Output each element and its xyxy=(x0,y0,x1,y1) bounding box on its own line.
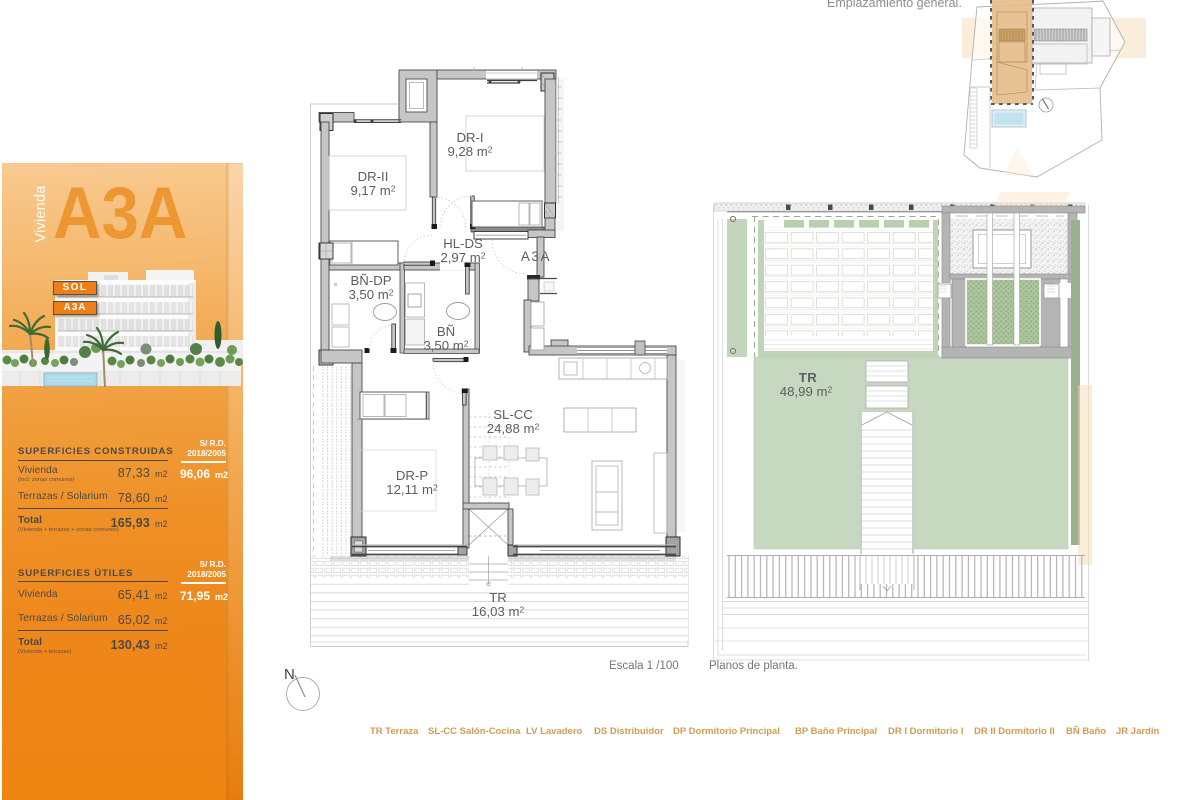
svg-text:BÑ: BÑ xyxy=(437,324,455,339)
svg-text:DR-II: DR-II xyxy=(358,169,389,184)
svg-text:A3A: A3A xyxy=(521,249,551,264)
svg-text:9,28 m2: 9,28 m2 xyxy=(447,144,492,159)
svg-text:48,99 m2: 48,99 m2 xyxy=(780,384,833,399)
svg-text:N: N xyxy=(284,666,295,683)
svg-text:3,50 m2: 3,50 m2 xyxy=(423,338,468,353)
svg-text:2,97 m2: 2,97 m2 xyxy=(440,250,485,265)
svg-text:16,03 m2: 16,03 m2 xyxy=(472,604,525,619)
svg-text:BÑ-DP: BÑ-DP xyxy=(350,273,391,288)
svg-text:3,50 m2: 3,50 m2 xyxy=(348,287,393,302)
svg-text:SL-CC: SL-CC xyxy=(493,407,533,422)
svg-text:24,88 m2: 24,88 m2 xyxy=(487,421,540,436)
svg-text:TR: TR xyxy=(799,370,818,385)
svg-text:TR: TR xyxy=(489,590,507,605)
svg-text:HL-DS: HL-DS xyxy=(443,236,483,251)
svg-text:12,11 m2: 12,11 m2 xyxy=(386,482,438,497)
svg-text:9,17 m2: 9,17 m2 xyxy=(350,183,395,198)
svg-text:DR-I: DR-I xyxy=(456,130,483,145)
svg-text:DR-P: DR-P xyxy=(396,468,428,483)
